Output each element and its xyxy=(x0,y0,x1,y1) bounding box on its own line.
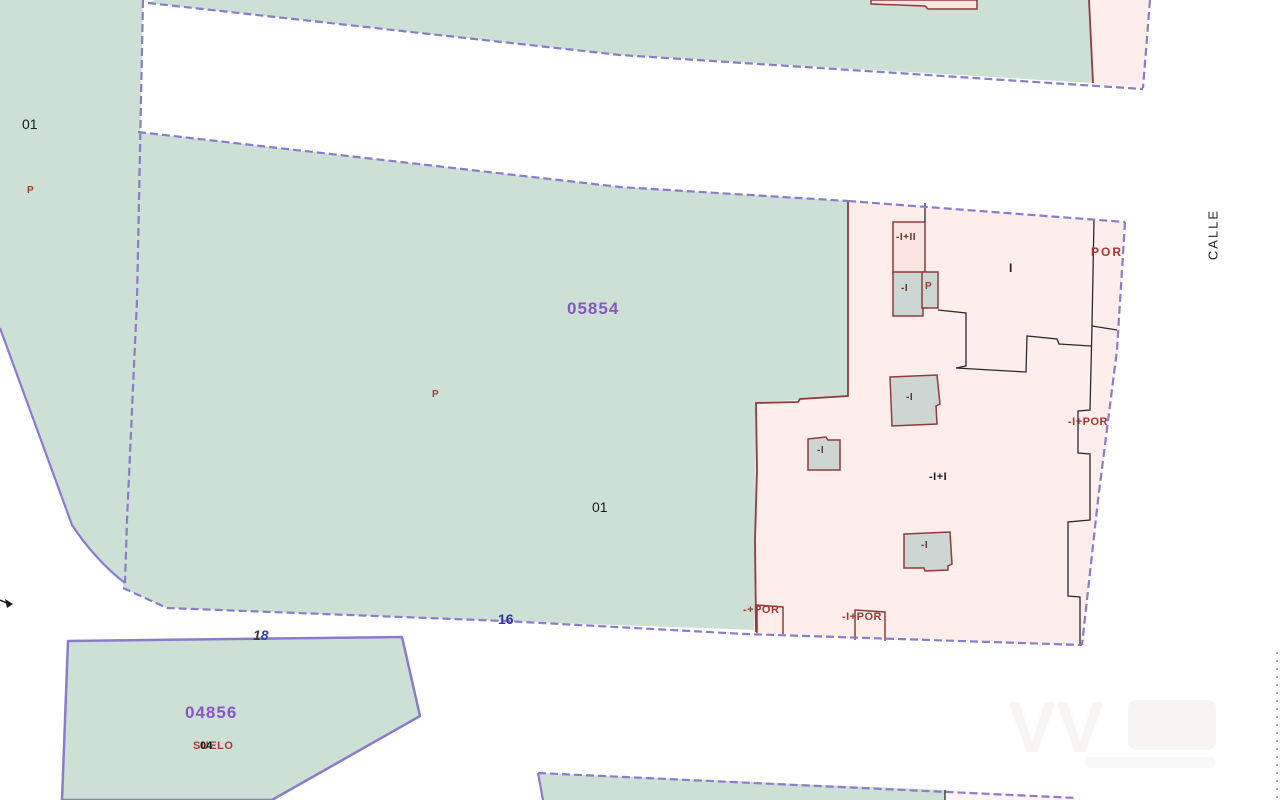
zone-label-left: 01 xyxy=(22,117,38,131)
arrow-marker xyxy=(0,599,13,608)
building-label-minusI-plusII: -I+II xyxy=(896,233,916,243)
building-label-porch-left: -+POR xyxy=(743,605,779,616)
building-minusI-low[interactable] xyxy=(904,532,952,571)
cadastral-map-viewport: VV xyxy=(0,0,1280,800)
p-marker-main: P xyxy=(432,390,439,400)
parcel-ref-04856[interactable]: 04856 xyxy=(185,704,237,721)
street-number-16: 16 xyxy=(498,612,514,626)
building-label-minusI-small: -I xyxy=(817,446,824,456)
watermark: VV xyxy=(1008,688,1216,768)
street-name-calle: CALLE xyxy=(1207,190,1220,280)
parcel-ref-05854[interactable]: 05854 xyxy=(567,300,619,317)
map-canvas: VV xyxy=(0,0,1280,800)
building-label-porch-mid: -I+POR xyxy=(842,612,882,623)
building-label-minusI-plusI: -I+I xyxy=(929,472,947,483)
building-label-minusI-low: -I xyxy=(921,541,928,551)
parcel-top-strip-region[interactable] xyxy=(148,0,1093,83)
parcel-04856-region[interactable] xyxy=(62,637,420,800)
building-minusI-top[interactable] xyxy=(893,272,923,316)
suelo-overlay-label: 04 xyxy=(200,741,212,752)
street-number-18-black: 1 xyxy=(253,627,261,643)
parcel-05854-region[interactable] xyxy=(123,132,848,630)
building-label-minusI-top: -I xyxy=(901,284,908,294)
zone-label-main: 01 xyxy=(592,500,608,514)
street-number-18: 18 xyxy=(253,628,269,642)
building-label-por-top: POR xyxy=(1091,246,1123,258)
building-label-porch-right: -I+POR xyxy=(1068,417,1108,428)
building-label-courtyard-I: I xyxy=(1009,262,1013,274)
building-label-minusI-mid: -I xyxy=(906,393,913,403)
svg-text:VV: VV xyxy=(1008,688,1104,768)
building-minusI-mid[interactable] xyxy=(890,375,940,426)
parcel-left-region[interactable] xyxy=(0,0,143,583)
parcel-top-right-sliver[interactable] xyxy=(1089,0,1150,88)
p-marker-left: P xyxy=(27,186,34,196)
parcel-bottom-strip-region[interactable] xyxy=(538,773,945,800)
building-label-porch-p: P xyxy=(925,282,932,292)
building-minusI-plusII[interactable] xyxy=(893,222,925,273)
street-number-18-blue: 8 xyxy=(261,627,269,643)
